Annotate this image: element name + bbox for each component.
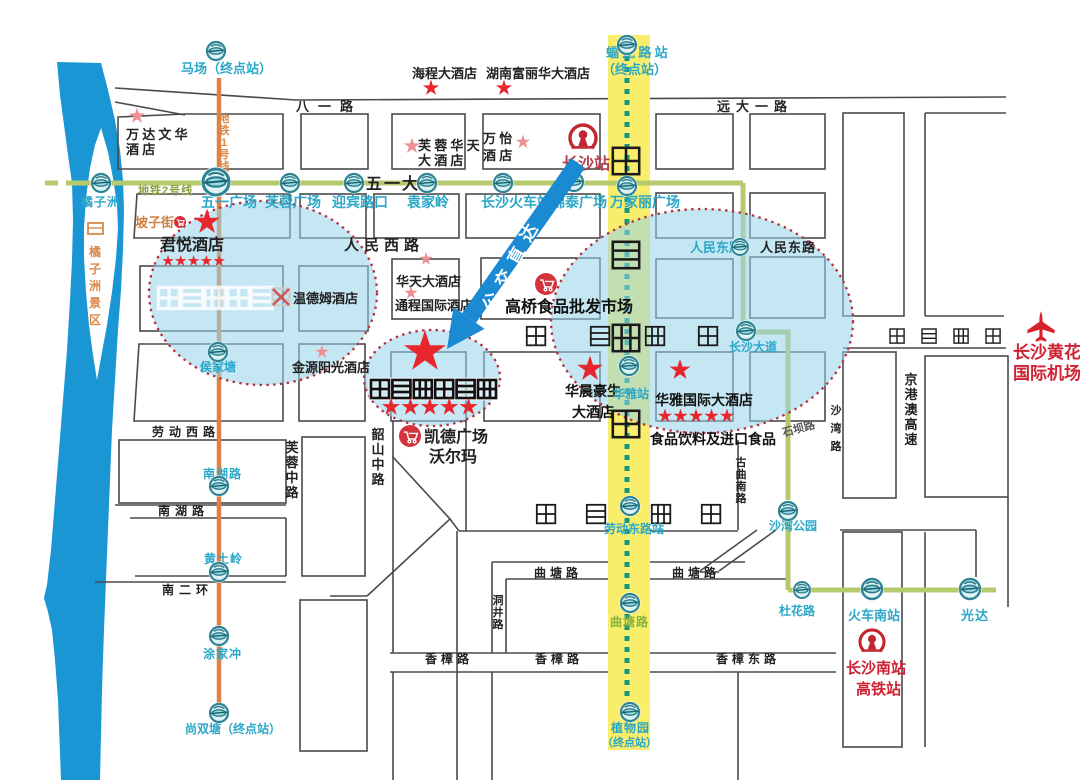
svg-text:大酒店: 大酒店 — [418, 153, 467, 168]
svg-text:中: 中 — [371, 457, 384, 472]
svg-text:京: 京 — [904, 372, 917, 387]
svg-text:曲: 曲 — [736, 467, 747, 481]
svg-text:区: 区 — [89, 313, 101, 327]
svg-text:长沙大道: 长沙大道 — [729, 339, 777, 354]
svg-text:曲塘路: 曲塘路 — [534, 565, 582, 580]
svg-text:南: 南 — [736, 479, 747, 493]
svg-text:华雅国际大酒店: 华雅国际大酒店 — [655, 392, 753, 408]
svg-text:曲塘路: 曲塘路 — [610, 614, 649, 629]
svg-text:沃尔玛: 沃尔玛 — [429, 447, 477, 466]
svg-text:五一广场: 五一广场 — [201, 194, 257, 210]
svg-text:通程国际酒店: 通程国际酒店 — [395, 298, 473, 313]
svg-text:大酒店: 大酒店 — [572, 404, 614, 420]
svg-text:尚双塘（终点站）: 尚双塘（终点站） — [185, 721, 281, 736]
svg-text:涂家冲: 涂家冲 — [203, 646, 242, 661]
svg-text:坡子街: 坡子街 — [135, 215, 174, 230]
svg-text:南湖路: 南湖路 — [158, 503, 209, 518]
svg-text:子: 子 — [89, 262, 101, 276]
svg-text:食品饮料及进口食品: 食品饮料及进口食品 — [650, 431, 776, 447]
svg-text:远大一路: 远大一路 — [717, 99, 793, 114]
svg-text:芙蓉华天: 芙蓉华天 — [418, 138, 483, 153]
svg-text:长沙南站: 长沙南站 — [846, 659, 906, 677]
svg-text:高: 高 — [904, 417, 917, 432]
svg-text:洲: 洲 — [89, 279, 101, 293]
svg-text:人民东路: 人民东路 — [760, 240, 816, 255]
svg-text:香樟东路: 香樟东路 — [715, 651, 780, 666]
svg-text:湾: 湾 — [831, 421, 842, 435]
svg-text:高铁站: 高铁站 — [856, 680, 901, 698]
svg-text:南二环: 南二环 — [162, 582, 213, 597]
svg-text:光达: 光达 — [960, 608, 989, 623]
svg-text:景: 景 — [89, 296, 101, 310]
svg-text:蝠龙路站: 蝠龙路站 — [606, 45, 671, 60]
svg-text:温德姆酒店: 温德姆酒店 — [293, 291, 358, 306]
svg-text:金源阳光酒店: 金源阳光酒店 — [291, 360, 370, 375]
svg-text:韶: 韶 — [371, 427, 384, 442]
svg-text:中: 中 — [285, 470, 298, 485]
svg-text:路: 路 — [371, 472, 385, 487]
svg-text:路: 路 — [493, 617, 505, 631]
svg-text:万怡: 万怡 — [482, 131, 515, 146]
svg-text:八一路: 八一路 — [295, 99, 362, 114]
svg-text:井: 井 — [493, 605, 504, 619]
svg-text:芙: 芙 — [285, 440, 299, 455]
svg-text:高桥食品批发市场: 高桥食品批发市场 — [505, 297, 633, 316]
svg-text:（终点站）: （终点站） — [602, 62, 667, 77]
svg-text:澳: 澳 — [904, 402, 918, 417]
svg-text:香樟路: 香樟路 — [534, 651, 583, 666]
svg-text:酒店: 酒店 — [126, 142, 158, 157]
svg-text:路: 路 — [831, 439, 843, 453]
svg-text:古: 古 — [736, 455, 747, 469]
svg-text:火车南站: 火车南站 — [848, 608, 900, 623]
svg-text:人民西路: 人民西路 — [344, 236, 424, 254]
svg-text:万家丽广场: 万家丽广场 — [609, 194, 680, 210]
svg-text:号: 号 — [219, 148, 230, 161]
svg-text:国际机场: 国际机场 — [1013, 363, 1080, 383]
svg-text:地铁2号线: 地铁2号线 — [138, 183, 193, 197]
svg-text:路: 路 — [736, 491, 748, 505]
svg-text:橘子洲: 橘子洲 — [80, 194, 120, 209]
svg-text:劳动西路: 劳动西路 — [152, 424, 220, 439]
svg-text:山: 山 — [371, 442, 384, 457]
svg-text:地: 地 — [219, 111, 230, 125]
svg-text:杜花路: 杜花路 — [779, 603, 816, 618]
svg-text:迎宾路口: 迎宾路口 — [332, 194, 388, 210]
svg-text:铁: 铁 — [219, 123, 230, 137]
svg-text:君悦酒店: 君悦酒店 — [160, 235, 224, 254]
svg-text:蓉: 蓉 — [285, 455, 299, 470]
svg-text:劳动东路站: 劳动东路站 — [604, 521, 664, 536]
svg-text:万达文华: 万达文华 — [125, 127, 191, 142]
svg-text:海程大酒店: 海程大酒店 — [412, 66, 477, 81]
svg-text:橘: 橘 — [88, 244, 101, 259]
svg-text:湖南富丽华大酒店: 湖南富丽华大酒店 — [486, 66, 590, 81]
svg-text:沙: 沙 — [831, 404, 842, 417]
svg-text:香樟路: 香樟路 — [424, 651, 473, 666]
svg-text:港: 港 — [904, 387, 918, 402]
svg-text:马场（终点站）: 马场（终点站） — [181, 61, 272, 76]
svg-text:长沙黄花: 长沙黄花 — [1013, 342, 1080, 362]
svg-text:华天大酒店: 华天大酒店 — [396, 274, 461, 289]
svg-text:曲塘路: 曲塘路 — [672, 565, 720, 580]
svg-text:袁家岭: 袁家岭 — [406, 194, 449, 210]
svg-text:凯德广场: 凯德广场 — [424, 427, 488, 446]
svg-text:（终点站）: （终点站） — [602, 735, 657, 749]
svg-text:华雅站: 华雅站 — [613, 386, 649, 401]
svg-text:速: 速 — [904, 432, 917, 447]
svg-text:1: 1 — [221, 137, 227, 149]
svg-text:芙蓉广场: 芙蓉广场 — [264, 194, 321, 210]
svg-text:酒店: 酒店 — [483, 148, 515, 163]
svg-text:洞: 洞 — [493, 593, 504, 607]
svg-text:路: 路 — [285, 485, 299, 500]
